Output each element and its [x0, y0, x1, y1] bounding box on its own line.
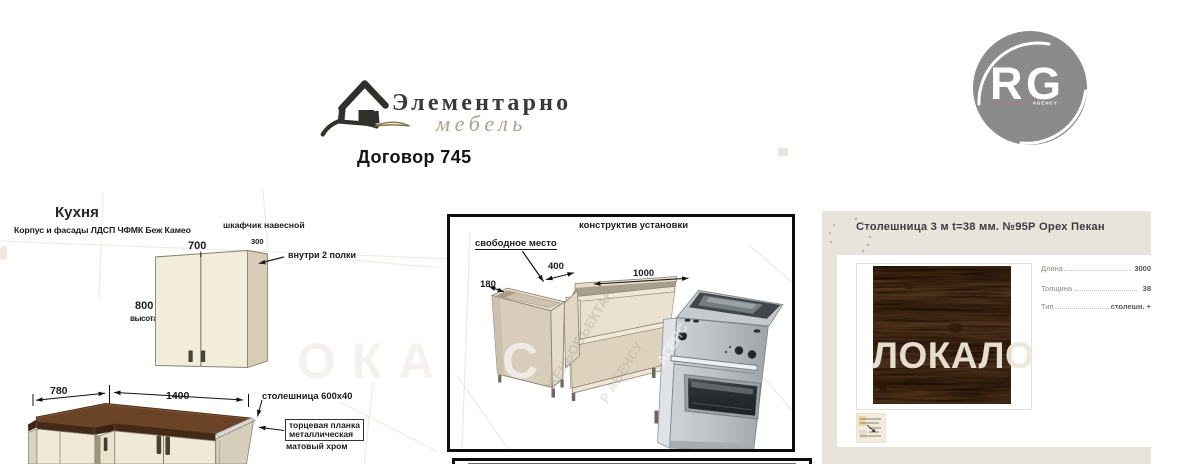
- svg-text:АГЕНС: АГЕНС: [654, 320, 691, 367]
- svg-text:ОКА: ОКА: [297, 333, 451, 389]
- svg-text:Р АБЕНСУ: Р АБЕНСУ: [597, 339, 647, 406]
- svg-text:ЛОКАЛО: ЛОКАЛО: [872, 335, 1034, 376]
- svg-text:ЛС: ЛС: [451, 333, 554, 389]
